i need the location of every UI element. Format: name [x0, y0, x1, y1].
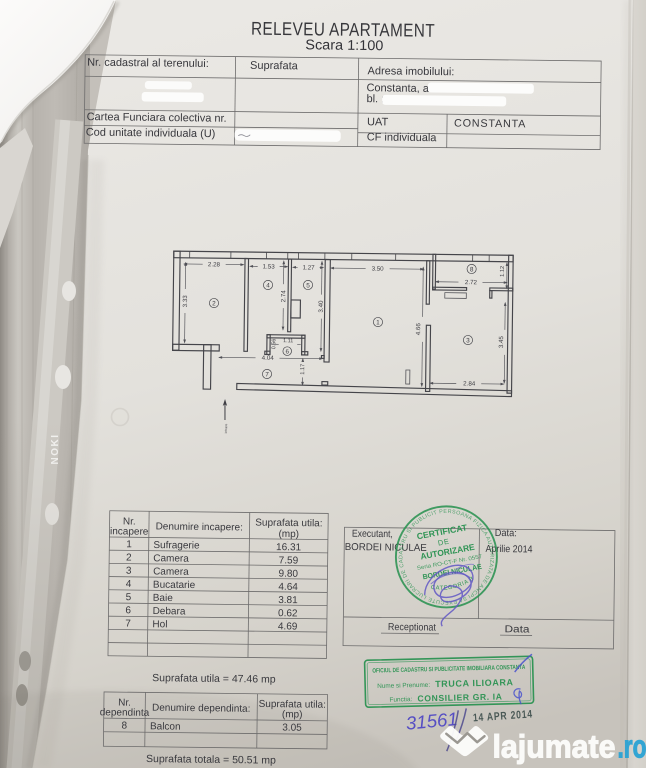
svg-text:Denumire dependinta:: Denumire dependinta:	[152, 703, 251, 715]
svg-text:Balcon: Balcon	[150, 721, 181, 732]
svg-text:Hol: Hol	[152, 619, 167, 630]
svg-text:Nr. cadastral al terenului:: Nr. cadastral al terenului:	[87, 57, 209, 70]
svg-text:Sufragerie: Sufragerie	[153, 540, 200, 552]
svg-text:Suprafata utila:: Suprafata utila:	[255, 518, 322, 530]
svg-text:Nume si Prenume:: Nume si Prenume:	[377, 682, 430, 690]
svg-text:Functia:: Functia:	[389, 696, 412, 704]
svg-text:intrare: intrare	[224, 424, 228, 434]
svg-text:0.62: 0.62	[278, 608, 298, 619]
svg-text:2.72: 2.72	[465, 279, 478, 286]
svg-text:7: 7	[265, 371, 269, 378]
svg-text:(mp): (mp)	[278, 529, 299, 540]
svg-text:2.28: 2.28	[208, 261, 221, 268]
svg-text:8: 8	[470, 266, 474, 273]
svg-text:3.81: 3.81	[278, 595, 298, 606]
svg-text:2: 2	[126, 552, 132, 563]
svg-text:Cartea Funciara colectiva nr.: Cartea Funciara colectiva nr.	[87, 111, 227, 125]
svg-text:5: 5	[306, 282, 310, 289]
svg-text:7: 7	[125, 618, 131, 629]
svg-text:BORDEI NICULAE: BORDEI NICULAE	[345, 542, 427, 554]
svg-text:3: 3	[466, 337, 470, 344]
svg-text:2.74: 2.74	[280, 290, 287, 303]
svg-text:1.11: 1.11	[283, 338, 293, 344]
svg-text:9.80: 9.80	[278, 569, 298, 580]
svg-text:incapere: incapere	[110, 526, 149, 537]
svg-text:3: 3	[126, 566, 132, 577]
svg-text:UAT: UAT	[367, 116, 389, 128]
svg-text:4.69: 4.69	[278, 621, 298, 632]
svg-text:1.27: 1.27	[303, 264, 316, 271]
svg-text:Baie: Baie	[153, 593, 174, 604]
svg-text:CF individuala: CF individuala	[367, 131, 438, 144]
svg-text:3.05: 3.05	[282, 723, 302, 734]
svg-text:3.45: 3.45	[498, 336, 505, 349]
svg-text:Camera: Camera	[153, 553, 189, 564]
svg-text:lajumate: lajumate	[493, 729, 616, 765]
svg-text:5: 5	[126, 592, 132, 603]
svg-text:1.17: 1.17	[300, 364, 306, 375]
svg-text:Suprafata: Suprafata	[250, 60, 299, 73]
svg-text:4: 4	[266, 282, 270, 289]
svg-text:1: 1	[376, 319, 380, 326]
svg-text:4.64: 4.64	[278, 582, 298, 593]
svg-text:(mp): (mp)	[282, 709, 303, 720]
svg-text:TRUCA ILIOARA: TRUCA ILIOARA	[435, 677, 514, 689]
svg-text:Debara: Debara	[153, 606, 186, 617]
svg-text:8: 8	[121, 721, 127, 732]
svg-text:1.53: 1.53	[263, 263, 276, 270]
svg-text:Data:: Data:	[495, 528, 517, 539]
svg-text:Executant,: Executant,	[352, 529, 393, 541]
svg-text:7.59: 7.59	[279, 555, 299, 566]
svg-text:2.84: 2.84	[463, 380, 476, 387]
svg-text:Suprafata totala = 50.51 mp: Suprafata totala = 50.51 mp	[146, 753, 276, 767]
svg-text:Adresa imobilului:: Adresa imobilului:	[367, 65, 454, 78]
svg-text:4.04: 4.04	[262, 355, 275, 362]
svg-text:2: 2	[212, 300, 216, 307]
svg-text:16.31: 16.31	[276, 542, 302, 553]
svg-text:4.66: 4.66	[415, 323, 422, 336]
svg-text:Data: Data	[504, 624, 530, 635]
svg-text:6: 6	[125, 605, 131, 616]
svg-text:.ro: .ro	[618, 729, 646, 765]
svg-text:CONSILIER GR. IA: CONSILIER GR. IA	[417, 691, 502, 703]
svg-text:Receptionat: Receptionat	[388, 622, 436, 634]
svg-text:Bucatarie: Bucatarie	[153, 580, 196, 592]
svg-text:1: 1	[126, 539, 132, 550]
svg-text:Denumire incapere:: Denumire incapere:	[156, 521, 243, 533]
svg-text:Cod unitate individuala (U): Cod unitate individuala (U)	[86, 127, 216, 141]
svg-text:3.40: 3.40	[318, 300, 325, 313]
svg-text:3.33: 3.33	[182, 295, 189, 308]
svg-text:dependinta: dependinta	[100, 707, 150, 719]
svg-text:4: 4	[126, 579, 132, 590]
svg-text:Camera: Camera	[153, 566, 189, 577]
svg-text:bl. :: bl. :	[366, 93, 384, 105]
svg-text:3.50: 3.50	[372, 266, 385, 273]
svg-text:1.12: 1.12	[500, 266, 506, 277]
svg-text:CONSTANTA: CONSTANTA	[454, 117, 526, 130]
svg-text:Suprafata utila = 47.46 mp: Suprafata utila = 47.46 mp	[152, 672, 276, 686]
svg-text:Scara 1:100: Scara 1:100	[305, 36, 383, 53]
